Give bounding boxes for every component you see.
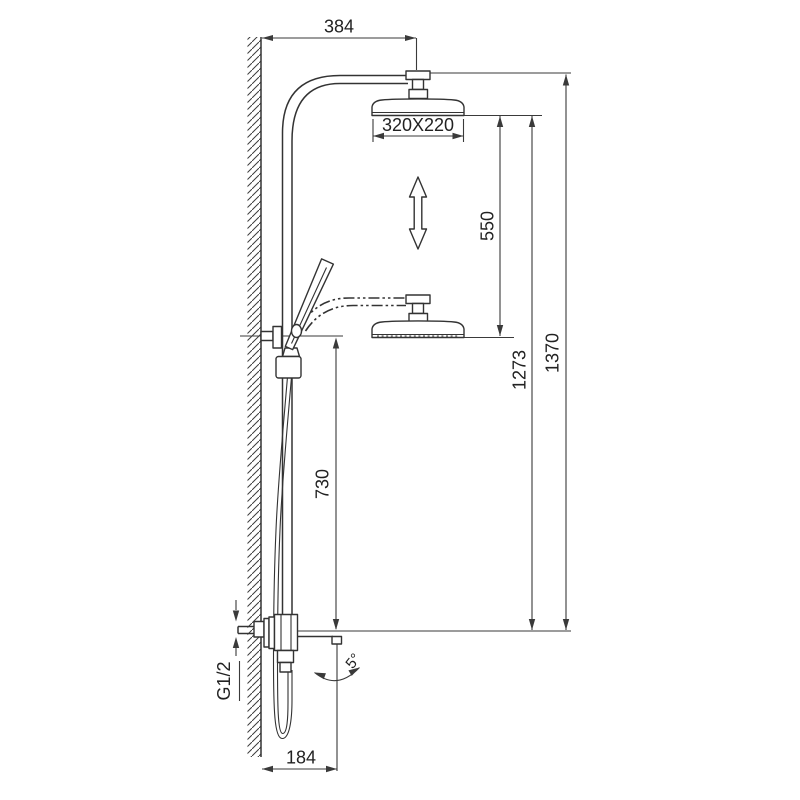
dimension-1273: 1273 (510, 116, 536, 630)
dimension-wall-to-head: 384 (262, 17, 416, 42)
wall-bracket (261, 327, 282, 349)
wall (248, 37, 262, 757)
dim-label-184: 184 (286, 748, 316, 768)
dimension-travel-550: 550 (478, 116, 504, 336)
height-adjust-arrow-icon (410, 177, 427, 249)
mixer-body (238, 615, 298, 673)
dim-label-1273: 1273 (510, 350, 530, 390)
spout-angle-indicator: 5° (313, 650, 364, 680)
dimension-head-size: 320X220 (373, 115, 464, 142)
head-mount-neck (413, 80, 424, 90)
hose-outlet (280, 663, 291, 673)
inlet-connector (254, 622, 264, 638)
dim-label-550: 550 (478, 211, 498, 241)
slider-block (276, 357, 301, 379)
riser-pipe-and-arm (283, 76, 417, 616)
dim-label-head-size: 320X220 (382, 115, 454, 135)
shower-column-dimension-drawing: 384 320X220 (0, 0, 800, 800)
shower-hose (274, 353, 294, 739)
head-mount-collar (409, 90, 428, 99)
dimension-730: 730 (313, 338, 340, 631)
dimension-spout-reach: 184 (262, 748, 337, 773)
spout-tip (332, 637, 342, 645)
dim-label-384: 384 (324, 17, 354, 37)
dimension-inlet-thread: G1/2 (214, 600, 240, 701)
overhead-shower-lowered (372, 295, 464, 338)
mixer-housing (275, 615, 298, 651)
dimension-overall-height: 1370 (543, 75, 570, 631)
dim-label-angle: 5° (342, 650, 364, 672)
technical-drawing-canvas: 384 320X220 (0, 0, 800, 800)
holder-knob (292, 325, 302, 338)
slider-holder (276, 348, 301, 378)
dim-label-1370: 1370 (543, 333, 563, 373)
head-mount-flange (406, 71, 430, 80)
dim-label-thread: G1/2 (214, 661, 234, 700)
spout (298, 637, 342, 645)
wall-hatching (248, 37, 262, 757)
dim-label-730: 730 (313, 469, 333, 499)
overhead-shower-upper (372, 71, 464, 116)
